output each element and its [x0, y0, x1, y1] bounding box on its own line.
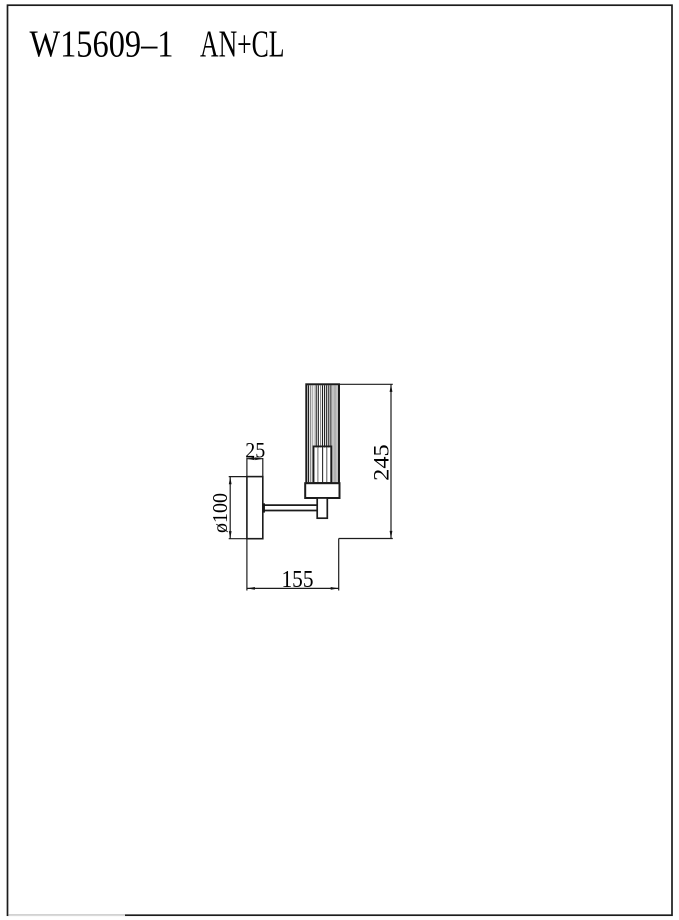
- svg-text:AN+CL: AN+CL: [200, 24, 285, 66]
- svg-text:245: 245: [369, 444, 394, 481]
- svg-text:ø100: ø100: [209, 493, 232, 533]
- svg-text:155: 155: [282, 567, 314, 593]
- svg-text:25: 25: [245, 438, 265, 463]
- svg-text:W15609–1: W15609–1: [30, 24, 174, 66]
